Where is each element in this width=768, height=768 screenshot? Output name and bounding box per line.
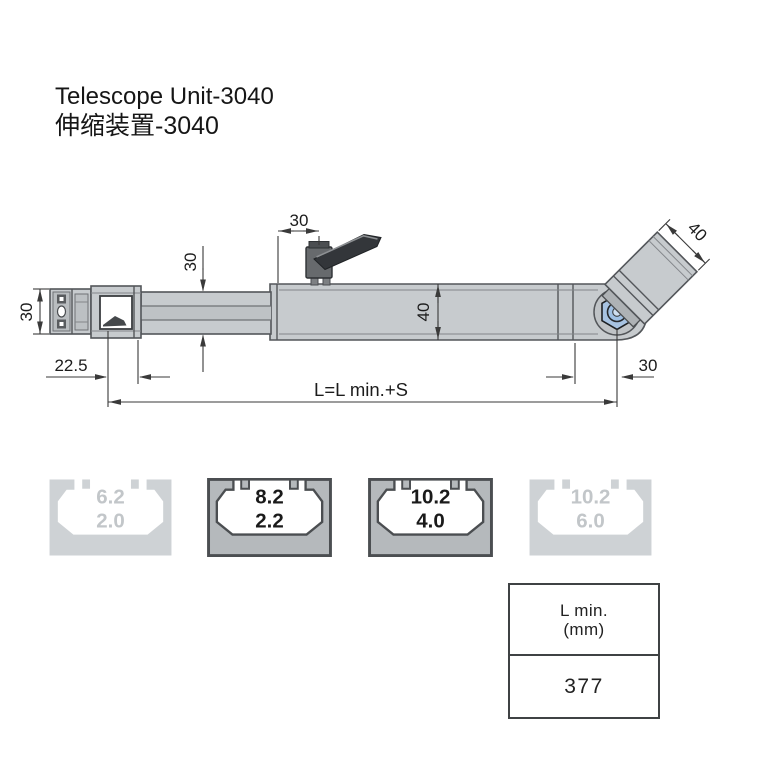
slot-width-label: 10.2 [571,485,611,508]
dimension-end-height: 30 [17,289,49,334]
profile-slot-8: 8.2 2.2 [207,478,332,557]
slot-depth-label: 6.0 [576,510,604,533]
lmin-header-line2: (mm) [563,620,604,639]
dim-arm-width: 40 [684,218,711,245]
slot-depth-label: 2.2 [255,510,283,533]
slot-depth-label: 2.0 [96,510,124,533]
dimension-total-length: L=L min.+S [108,379,617,402]
dim-inner-height: 30 [181,253,200,272]
clamp-lever [306,235,381,286]
slot-width-label: 10.2 [411,485,451,508]
slot-depth-label: 4.0 [416,510,444,533]
dim-total-length: L=L min.+S [314,379,408,400]
lmin-value: 377 [564,675,604,699]
outer-beam [270,284,647,340]
slot-width-label: 8.2 [255,485,283,508]
dim-end-offset: 22.5 [54,356,87,375]
profile-slot-6: 6.2 2.0 [48,478,173,557]
dim-end-height: 30 [17,303,36,322]
lmin-table: L min. (mm) 377 [508,583,660,719]
profile-slot-10: 10.2 4.0 [368,478,493,557]
profile-slot-10-heavy: 10.2 6.0 [528,478,653,557]
dim-body-height: 40 [414,303,433,322]
dim-lever-offset: 30 [290,211,309,230]
lmin-table-value: 377 [510,656,658,718]
lmin-header-line1: L min. [560,601,608,620]
catalog-page: Telescope Unit-3040 伸缩装置-3040 [0,0,768,768]
end-cap-section [50,289,91,334]
clamp-housing [91,286,141,338]
inner-beam [141,292,271,334]
slot-width-label: 6.2 [96,485,124,508]
dim-pivot-offset: 30 [639,356,658,375]
dimension-end-offset: 22.5 [46,331,170,407]
lmin-table-header: L min. (mm) [510,585,658,656]
